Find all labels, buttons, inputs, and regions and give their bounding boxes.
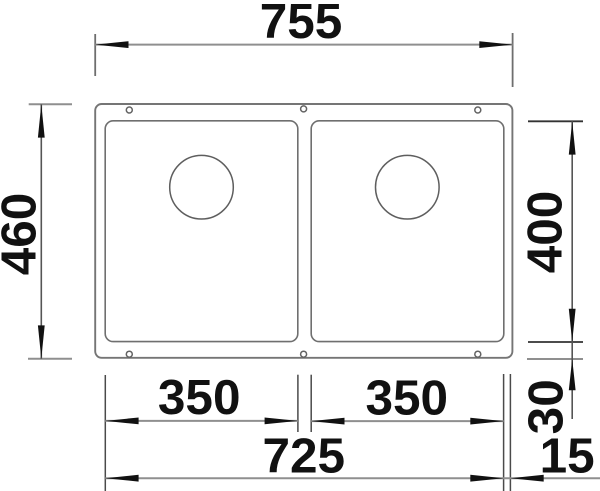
svg-text:725: 725: [263, 428, 346, 483]
svg-text:460: 460: [0, 193, 46, 276]
svg-text:350: 350: [366, 370, 449, 425]
svg-text:15: 15: [540, 428, 595, 483]
svg-text:350: 350: [158, 370, 241, 425]
svg-text:30: 30: [518, 379, 573, 434]
svg-text:755: 755: [260, 0, 343, 49]
svg-text:400: 400: [518, 191, 573, 274]
